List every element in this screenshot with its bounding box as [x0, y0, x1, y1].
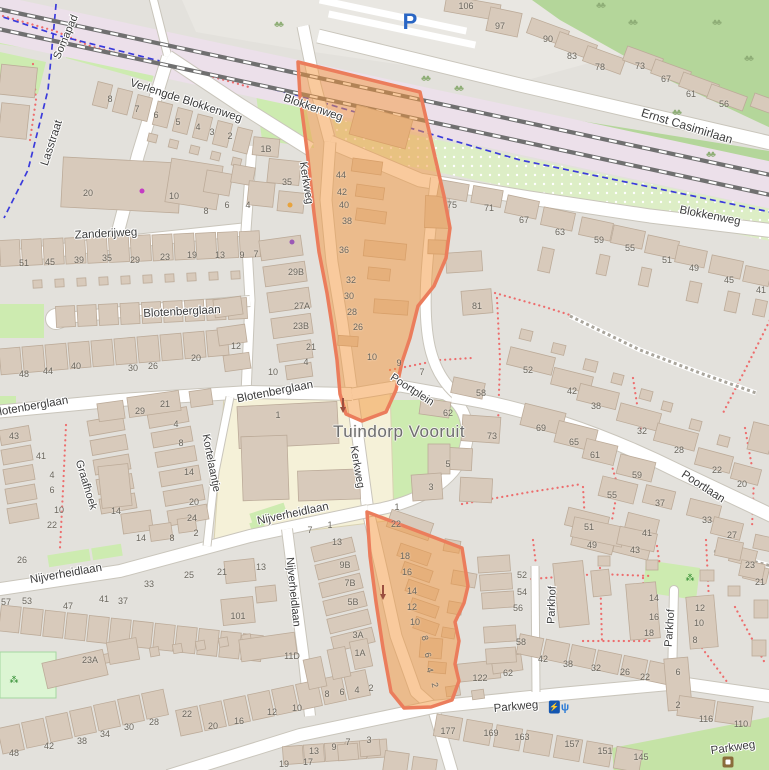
house-number: 122 — [472, 673, 487, 683]
house-number: 1 — [394, 502, 399, 512]
house-number: 4 — [245, 200, 250, 210]
ev-charging-icon: ⚡ψ — [549, 701, 569, 714]
house-number: 29B — [288, 267, 304, 277]
house-number: 23 — [745, 560, 755, 570]
street-label: Nijverheidlaan — [29, 562, 103, 586]
house-number: 35 — [102, 253, 112, 263]
house-number: 7 — [253, 249, 258, 259]
house-number: 25 — [184, 570, 194, 580]
house-number: 18 — [644, 628, 654, 638]
house-number: 3 — [209, 127, 214, 137]
house-number: 97 — [495, 21, 505, 31]
house-number: 21 — [217, 567, 227, 577]
house-number: 20 — [83, 188, 93, 198]
playground-icon: ⁂ — [10, 675, 19, 686]
house-number: 5 — [175, 117, 180, 127]
house-number: 49 — [587, 540, 597, 550]
house-number: 23 — [160, 252, 170, 262]
house-number: 30 — [344, 291, 354, 301]
house-number: 42 — [44, 741, 54, 751]
house-number: 4 — [354, 685, 359, 695]
street-label: Poortplein — [388, 371, 436, 408]
street-label: Parkhof — [545, 586, 558, 624]
house-number: 73 — [487, 431, 497, 441]
house-number: 11D — [284, 651, 300, 661]
house-number: 8 — [420, 634, 431, 641]
house-number: 32 — [591, 663, 601, 673]
house-number: 26 — [620, 667, 630, 677]
house-number: 10 — [54, 505, 64, 515]
house-number: 101 — [230, 611, 245, 621]
house-number: 3 — [428, 482, 433, 492]
house-number: 151 — [597, 746, 612, 756]
house-number: 32 — [346, 275, 356, 285]
house-number: 16 — [649, 612, 659, 622]
house-number: 23B — [293, 321, 309, 331]
house-number: 58 — [516, 637, 526, 647]
house-number: 55 — [625, 243, 635, 253]
house-number: 33 — [144, 579, 154, 589]
house-number: 16 — [234, 716, 244, 726]
house-number: 12 — [407, 602, 417, 612]
house-number: 10 — [694, 618, 704, 628]
house-number: 8 — [169, 533, 174, 543]
house-number: 12 — [267, 707, 277, 717]
house-number: 13 — [256, 562, 266, 572]
house-number: 49 — [689, 263, 699, 273]
house-number: 51 — [584, 522, 594, 532]
house-number: 8 — [203, 206, 208, 216]
house-number: 3A — [352, 630, 363, 640]
playground-icon: ⁂ — [686, 573, 695, 584]
house-number: 9 — [396, 358, 401, 368]
house-number: 7 — [345, 737, 350, 747]
house-number: 1B — [260, 144, 271, 154]
house-number: 9B — [339, 560, 350, 570]
house-number: 169 — [483, 728, 498, 738]
house-number: 7 — [419, 367, 424, 377]
house-number: 10 — [268, 367, 278, 377]
parking-icon: P — [403, 9, 418, 35]
house-number: 45 — [724, 275, 734, 285]
house-number: 21 — [306, 342, 316, 352]
house-number: 10 — [169, 191, 179, 201]
place-label: Tuindorp Vooruit — [333, 422, 465, 442]
house-number: 61 — [590, 450, 600, 460]
house-number: 26 — [353, 322, 363, 332]
street-label: Blokkenweg — [678, 204, 741, 228]
house-number: 23A — [82, 655, 98, 665]
street-label: Nijverheidlaan — [256, 501, 330, 528]
house-number: 2 — [675, 700, 680, 710]
house-number: 37 — [118, 596, 128, 606]
tree-icon: ♣♣ — [712, 17, 720, 27]
house-number: 6 — [49, 485, 54, 495]
house-number: 177 — [440, 726, 455, 736]
house-number: 6 — [224, 200, 229, 210]
poi-dot — [288, 203, 293, 208]
house-number: 20 — [737, 479, 747, 489]
house-number: 51 — [662, 255, 672, 265]
house-number: 54 — [517, 587, 527, 597]
house-number: 58 — [476, 388, 486, 398]
house-number: 10 — [292, 703, 302, 713]
house-number: 2 — [227, 131, 232, 141]
tree-icon: ♣♣ — [596, 0, 604, 10]
house-number: 26 — [17, 555, 27, 565]
street-label: Blotenberglaan — [0, 394, 69, 419]
house-number: 5 — [445, 459, 450, 469]
house-number: 21 — [755, 577, 765, 587]
tree-icon: ♣♣ — [628, 17, 636, 27]
house-number: 83 — [567, 51, 577, 61]
house-number: 3 — [366, 735, 371, 745]
house-number: 52 — [517, 570, 527, 580]
house-number: 52 — [523, 365, 533, 375]
house-number: 19 — [279, 759, 289, 769]
house-number: 22 — [182, 709, 192, 719]
street-label: Blotenberglaan — [236, 379, 314, 406]
house-number: 6 — [423, 651, 434, 658]
street-label: Lasstraat — [39, 119, 65, 168]
house-number: 62 — [503, 668, 513, 678]
house-number: 59 — [632, 470, 642, 480]
house-number: 110 — [734, 719, 748, 729]
house-number: 4 — [195, 122, 200, 132]
house-number: 13 — [332, 537, 342, 547]
street-label: Blotenberglaan — [143, 304, 221, 320]
house-number: 1 — [327, 520, 332, 530]
house-number: 41 — [36, 451, 46, 461]
house-number: 4 — [49, 470, 54, 480]
house-number: 63 — [555, 227, 565, 237]
house-number: 38 — [342, 216, 352, 226]
house-number: 44 — [43, 366, 53, 376]
house-number: 42 — [567, 386, 577, 396]
house-number: 37 — [655, 498, 665, 508]
house-number: 7 — [307, 525, 312, 535]
house-number: 81 — [472, 301, 482, 311]
street-label: Ernst Casimirlaan — [640, 105, 735, 146]
house-number: 1 — [275, 410, 280, 420]
house-number: 14 — [407, 586, 417, 596]
house-number: 13 — [215, 250, 225, 260]
house-number: 14 — [111, 506, 121, 516]
house-number: 116 — [699, 714, 713, 724]
house-number: 8 — [692, 635, 697, 645]
house-number: 5B — [347, 597, 358, 607]
house-number: 13 — [309, 746, 319, 756]
house-number: 14 — [184, 467, 194, 477]
house-number: 6 — [675, 667, 680, 677]
house-number: 59 — [594, 235, 604, 245]
house-number: 41 — [99, 594, 109, 604]
street-label: Parkweg — [493, 699, 539, 715]
house-number: 56 — [513, 603, 523, 613]
house-number: 29 — [130, 255, 140, 265]
house-number: 10 — [410, 617, 420, 627]
house-number: 14 — [649, 593, 659, 603]
street-label: Graafhoek — [73, 459, 99, 512]
house-number: 48 — [19, 369, 29, 379]
house-number: 4 — [303, 357, 308, 367]
house-number: 69 — [536, 423, 546, 433]
house-number: 26 — [148, 361, 158, 371]
house-number: 12 — [695, 603, 705, 613]
house-number: 42 — [337, 187, 347, 197]
house-number: 43 — [9, 431, 19, 441]
street-label: Zanderijweg — [74, 226, 137, 241]
map-viewport[interactable]: Tuindorp Vooruit SomapadLasstraatVerleng… — [0, 0, 769, 770]
house-number: 145 — [633, 752, 648, 762]
house-number: 4 — [425, 666, 436, 673]
house-number: 38 — [77, 736, 87, 746]
house-number: 6 — [153, 110, 158, 120]
house-number: 40 — [71, 361, 81, 371]
house-number: 67 — [661, 74, 671, 84]
house-number: 36 — [339, 245, 349, 255]
house-number: 43 — [630, 545, 640, 555]
house-number: 6 — [339, 687, 344, 697]
house-number: 33 — [702, 515, 712, 525]
house-number: 18 — [400, 551, 410, 561]
house-number: 39 — [74, 255, 84, 265]
house-number: 2 — [368, 683, 373, 693]
house-number: 34 — [100, 729, 110, 739]
house-number: 90 — [543, 34, 553, 44]
house-number: 8 — [178, 438, 183, 448]
house-number: 14 — [136, 533, 146, 543]
house-number: 56 — [719, 99, 729, 109]
street-label: Somapad — [51, 13, 80, 61]
street-label: Verlengde Blokkenweg — [129, 77, 244, 125]
house-number: 16 — [402, 567, 412, 577]
house-number: 22 — [391, 519, 401, 529]
tree-icon: ♣♣ — [421, 73, 429, 83]
house-number: 38 — [563, 659, 573, 669]
house-number: 20 — [208, 721, 218, 731]
house-number: 51 — [19, 258, 29, 268]
house-number: 21 — [160, 399, 170, 409]
house-number: 38 — [591, 401, 601, 411]
house-number: 53 — [22, 596, 32, 606]
house-number: 65 — [569, 437, 579, 447]
tree-icon: ♣♣ — [274, 19, 282, 29]
house-number: 42 — [538, 654, 548, 664]
house-number: 10 — [367, 352, 377, 362]
tree-icon: ♣♣ — [454, 83, 462, 93]
house-number: 157 — [564, 739, 579, 749]
street-label: Kerkweg — [297, 161, 316, 205]
house-number: 55 — [607, 490, 617, 500]
house-number: 35 — [282, 177, 292, 187]
house-number: 4 — [173, 419, 178, 429]
house-number: 8 — [107, 94, 112, 104]
house-number: 47 — [63, 601, 73, 611]
house-number: 48 — [9, 748, 19, 758]
house-number: 20 — [191, 353, 201, 363]
house-number: 22 — [640, 672, 650, 682]
house-number: 2 — [193, 528, 198, 538]
house-number: 27A — [294, 301, 310, 311]
house-number: 41 — [756, 285, 766, 295]
house-number: 1A — [354, 648, 365, 658]
tree-icon: ♣♣ — [706, 149, 714, 159]
house-number: 29 — [135, 406, 145, 416]
park-amenity-icon — [723, 757, 734, 768]
street-label: Kerkweg — [347, 445, 366, 489]
house-number: 12 — [231, 341, 241, 351]
house-number: 78 — [595, 62, 605, 72]
house-number: 20 — [189, 497, 199, 507]
house-number: 7 — [134, 104, 139, 114]
house-number: 75 — [447, 200, 457, 210]
house-number: 24 — [187, 513, 197, 523]
house-number: 28 — [149, 717, 159, 727]
house-number: 106 — [458, 1, 473, 11]
house-number: 30 — [124, 722, 134, 732]
house-number: 41 — [642, 528, 652, 538]
house-number: 27 — [727, 530, 737, 540]
house-number: 163 — [514, 732, 529, 742]
map-label-layer: Tuindorp Vooruit SomapadLasstraatVerleng… — [0, 0, 769, 770]
street-label: Parkhof — [663, 609, 678, 648]
house-number: 30 — [128, 363, 138, 373]
house-number: 44 — [336, 170, 346, 180]
street-label: Parkweg — [710, 739, 756, 757]
house-number: 28 — [347, 307, 357, 317]
house-number: 28 — [674, 445, 684, 455]
house-number: 67 — [519, 215, 529, 225]
house-number: 7B — [344, 578, 355, 588]
house-number: 19 — [187, 250, 197, 260]
house-number: 8 — [324, 689, 329, 699]
house-number: 9 — [331, 742, 336, 752]
house-number: 32 — [637, 426, 647, 436]
street-label: Blokkenweg — [282, 92, 345, 124]
house-number: 22 — [47, 520, 57, 530]
house-number: 62 — [443, 408, 453, 418]
house-number: 2 — [430, 681, 441, 688]
house-number: 61 — [686, 89, 696, 99]
house-number: 45 — [45, 257, 55, 267]
house-number: 22 — [712, 465, 722, 475]
tree-icon: ♣♣ — [744, 53, 752, 63]
poi-dot — [290, 240, 295, 245]
house-number: 73 — [635, 61, 645, 71]
house-number: 17 — [303, 757, 313, 767]
house-number: 57 — [1, 597, 11, 607]
street-label: Nijverheidlaan — [283, 557, 302, 628]
house-number: 9 — [239, 250, 244, 260]
house-number: 40 — [339, 200, 349, 210]
house-number: 71 — [484, 203, 494, 213]
street-label: Kortelaantje — [200, 433, 223, 493]
poi-dot — [140, 189, 145, 194]
tree-icon: ♣♣ — [672, 107, 680, 117]
